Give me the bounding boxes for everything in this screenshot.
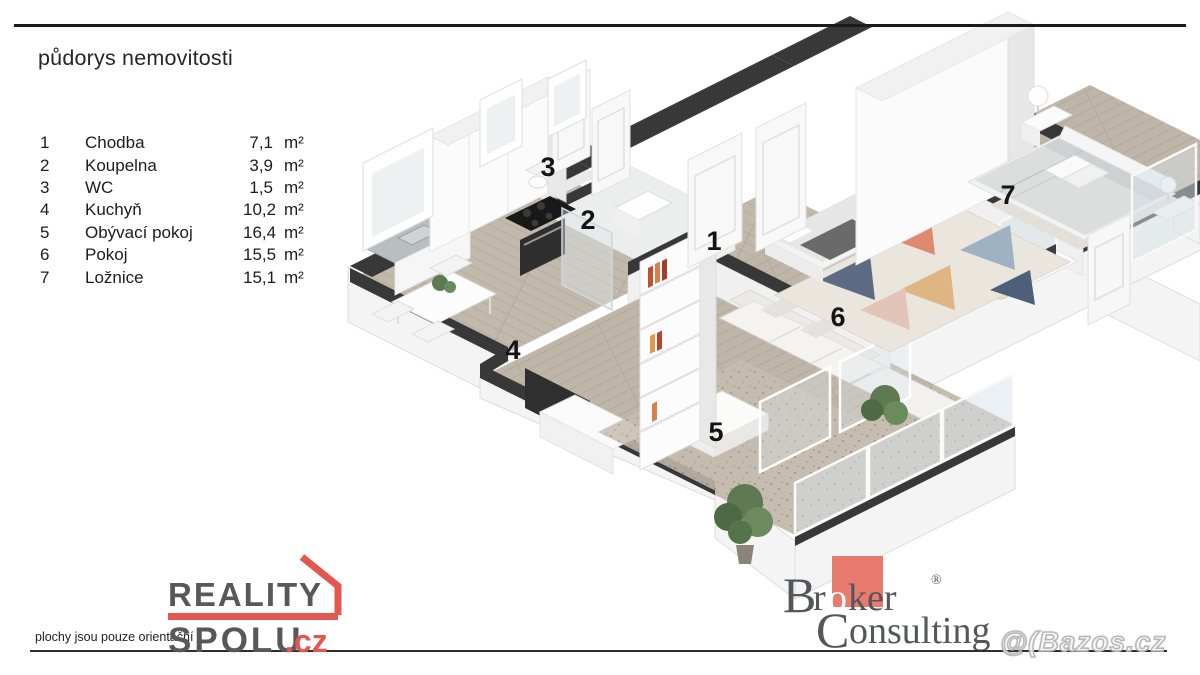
- legend-area-unit: m²: [284, 245, 318, 265]
- legend-area-unit: m²: [284, 178, 318, 198]
- reality-spolu-logo: REALITY SPOLU .cz: [166, 549, 348, 657]
- top-rule: [14, 24, 1186, 27]
- legend-area-unit: m²: [284, 133, 318, 153]
- room-label-wc: 3: [540, 152, 555, 182]
- room-label-bathroom: 2: [580, 205, 595, 235]
- room-label-living: 5: [708, 417, 723, 447]
- legend-room-number: 3: [40, 178, 85, 198]
- legend-room-number: 2: [40, 156, 85, 176]
- legend-row: 6 Pokoj 15,5 m²: [40, 244, 318, 266]
- cz-tld-text: .cz: [285, 623, 328, 657]
- legend-room-number: 4: [40, 200, 85, 220]
- room-label-room: 6: [830, 302, 845, 332]
- bazos-watermark: @(Bazos.cz: [1000, 626, 1166, 658]
- legend-room-name: WC: [85, 178, 243, 198]
- legend-area-unit: m²: [284, 156, 318, 176]
- legend-row: 1 Chodba 7,1 m²: [40, 132, 318, 154]
- legend-room-area: 16,4: [243, 223, 273, 243]
- legend-room-number: 6: [40, 245, 85, 265]
- legend-room-area: 7,1: [243, 133, 273, 153]
- bedside-lamp: [1028, 86, 1048, 106]
- legend-room-name: Obývací pokoj: [85, 223, 243, 243]
- broker-b: B: [783, 567, 816, 623]
- legend-row: 5 Obývací pokoj 16,4 m²: [40, 222, 318, 244]
- legend-area-unit: m²: [284, 223, 318, 243]
- room-label-bedroom: 7: [1000, 180, 1015, 210]
- room-label-kitchen: 4: [505, 335, 520, 365]
- bookshelf: [640, 232, 716, 470]
- legend-area-unit: m²: [284, 200, 318, 220]
- legend-room-name: Chodba: [85, 133, 243, 153]
- legend-room-area: 10,2: [243, 200, 273, 220]
- room6-door: [756, 103, 806, 252]
- legend-room-name: Kuchyň: [85, 200, 243, 220]
- legend-room-number: 7: [40, 268, 85, 288]
- reality-text: REALITY: [168, 576, 323, 613]
- legend-room-name: Ložnice: [85, 268, 243, 288]
- legend-room-area: 3,9: [243, 156, 273, 176]
- legend-row: 2 Koupelna 3,9 m²: [40, 154, 318, 176]
- logo-underline: [168, 613, 338, 620]
- legend-room-number: 5: [40, 223, 85, 243]
- legend-room-area: 15,5: [243, 245, 273, 265]
- legend-room-area: 1,5: [243, 178, 273, 198]
- legend-row: 4 Kuchyň 10,2 m²: [40, 199, 318, 221]
- legend-room-name: Koupelna: [85, 156, 243, 176]
- bath-door: [592, 90, 630, 196]
- registered-icon: ®: [931, 573, 942, 588]
- consulting-c: C: [816, 602, 849, 650]
- legend-row: 3 WC 1,5 m²: [40, 177, 318, 199]
- room-label-hallway: 1: [706, 226, 721, 256]
- room-legend: 1 Chodba 7,1 m² 2 Koupelna 3,9 m² 3 WC 1…: [40, 132, 318, 289]
- legend-room-name: Pokoj: [85, 245, 243, 265]
- spolu-text: SPOLU: [168, 621, 304, 657]
- legend-row: 7 Ložnice 15,1 m²: [40, 266, 318, 288]
- consulting-rest: onsulting: [849, 610, 990, 650]
- legend-area-unit: m²: [284, 268, 318, 288]
- legend-room-number: 1: [40, 133, 85, 153]
- legend-room-area: 15,1: [243, 268, 273, 288]
- page-title: půdorys nemovitosti: [38, 46, 233, 71]
